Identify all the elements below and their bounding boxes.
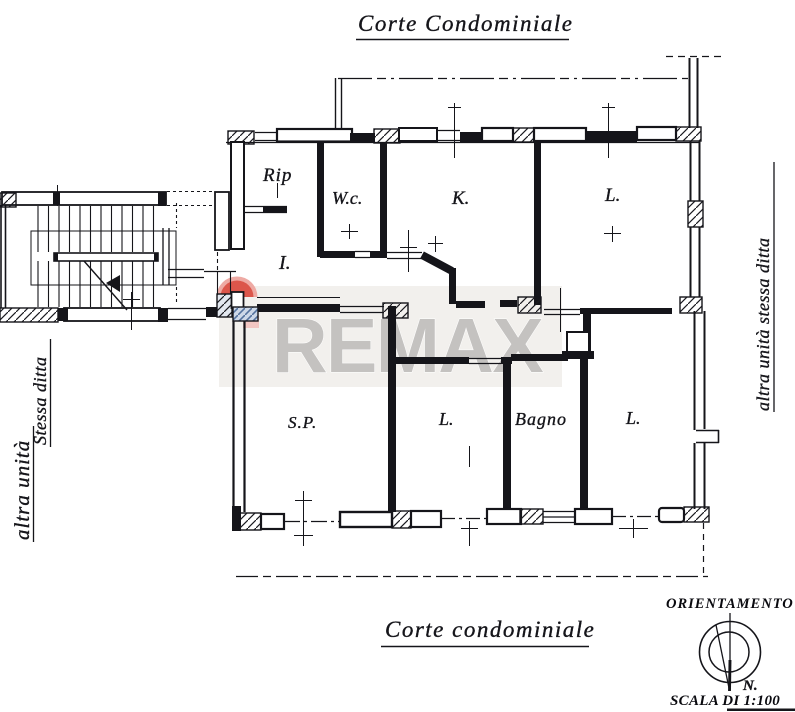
svg-text:ORIENTAMENTO: ORIENTAMENTO [666, 596, 794, 612]
svg-text:altra unità stessa ditta: altra unità stessa ditta [753, 237, 773, 411]
svg-text:altra unità: altra unità [10, 440, 34, 540]
svg-text:Stessa ditta: Stessa ditta [30, 356, 50, 445]
svg-text:SCALA DI 1:100: SCALA DI 1:100 [670, 693, 780, 709]
svg-text:Rip: Rip [262, 165, 292, 186]
svg-text:S.P.: S.P. [288, 413, 317, 432]
svg-text:W.c.: W.c. [332, 188, 362, 208]
svg-text:I.: I. [278, 252, 291, 274]
svg-text:Corte condominiale: Corte condominiale [385, 617, 595, 642]
svg-text:K.: K. [451, 188, 469, 209]
svg-text:Bagno: Bagno [515, 409, 567, 429]
svg-text:L.: L. [604, 185, 620, 206]
svg-text:N.: N. [742, 678, 758, 694]
svg-text:L.: L. [625, 408, 641, 428]
svg-text:L.: L. [438, 409, 454, 429]
